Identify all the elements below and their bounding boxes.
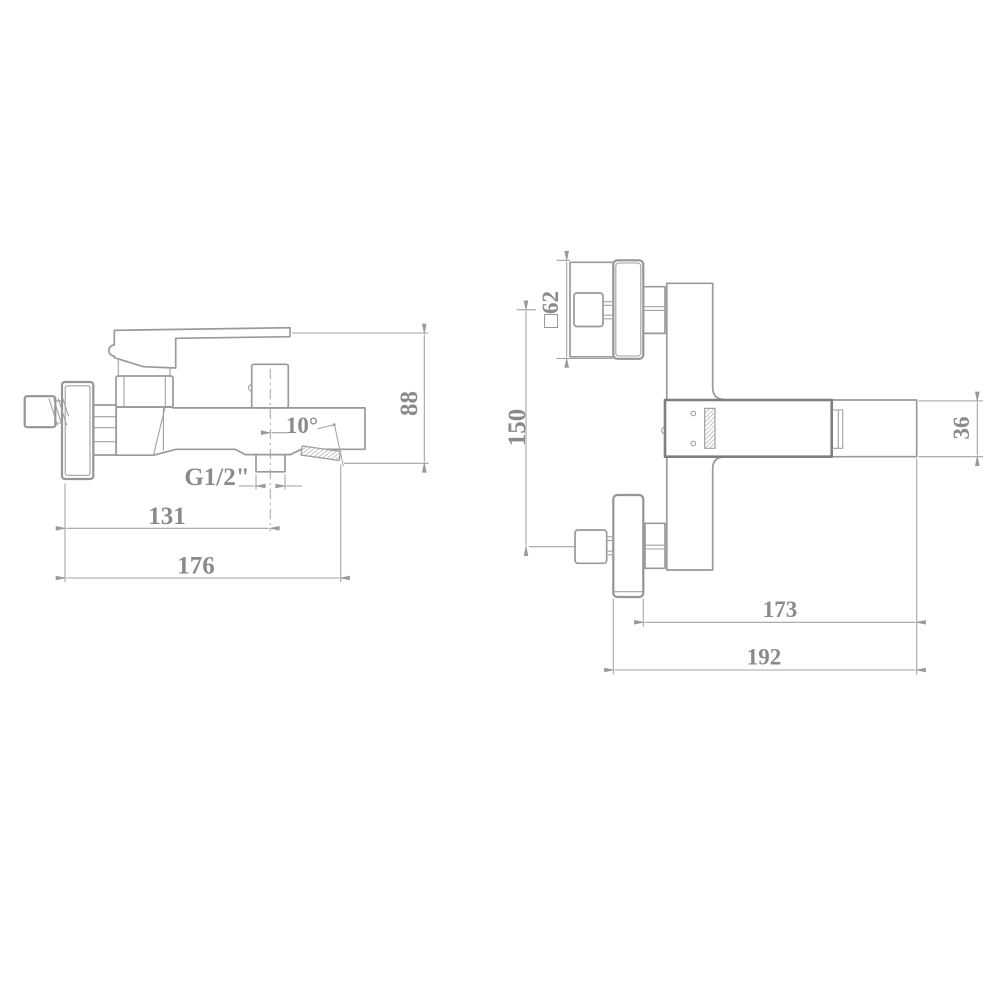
- top-flange: [613, 260, 643, 359]
- dim-150: 150: [504, 310, 575, 547]
- dim-g12-label: G1/2": [184, 464, 249, 491]
- spout-top-view: [832, 400, 917, 457]
- dim-131: 131: [65, 484, 269, 583]
- supply-fitting: [25, 396, 56, 427]
- mixer-body-top-view: [665, 400, 832, 457]
- dim-176-label: 176: [177, 553, 215, 580]
- technical-drawing: 88 131 176 G1/2" 10°: [0, 0, 1000, 1000]
- top-column: [667, 283, 725, 399]
- bottom-column: [667, 457, 725, 570]
- spout-bracket: [832, 410, 843, 448]
- top-port-tab1: [603, 302, 613, 306]
- side-view: 88 131 176 G1/2" 10°: [25, 328, 429, 582]
- wall-nut-flats: [94, 417, 117, 442]
- dim-192-label: 192: [747, 645, 782, 670]
- top-flange-inner: [616, 263, 641, 356]
- bottom-port-square: [575, 530, 607, 563]
- bottom-flange: [613, 495, 643, 597]
- dim-62-label: □62: [538, 291, 563, 328]
- dim-36-label: 36: [949, 417, 974, 440]
- dim-173-label: 173: [763, 597, 798, 622]
- dim-88: 88: [292, 333, 429, 463]
- body-inner-detail: [154, 408, 166, 456]
- spout-aerator: [301, 446, 341, 460]
- lever-grip-strip: [705, 408, 715, 448]
- drawing-canvas: 88 131 176 G1/2" 10°: [0, 0, 1000, 1000]
- top-escutcheon-plate: [570, 262, 613, 357]
- bottom-nut: [645, 523, 665, 568]
- wall-nut: [94, 405, 117, 455]
- dim-62: □62: [538, 260, 614, 358]
- bottom-nut-flats: [645, 545, 665, 549]
- front-view: □62 150 36 173 192: [504, 260, 983, 674]
- cartridge-inner-lines: [124, 377, 165, 407]
- dim-150-label: 150: [504, 409, 531, 447]
- top-nut-flats: [643, 307, 665, 311]
- wall-flange: [62, 382, 93, 479]
- dim-173: 173: [643, 459, 916, 675]
- dim-10deg-label: 10°: [286, 413, 318, 438]
- dim-36: 36: [919, 401, 984, 457]
- wall-flange-inner: [65, 386, 90, 476]
- lever-handle: [109, 328, 290, 368]
- faucet-body-outline: [116, 407, 365, 455]
- top-port-tab2: [603, 315, 613, 319]
- dim-88-label: 88: [396, 391, 423, 416]
- top-port-square: [574, 293, 603, 327]
- dim-131-label: 131: [148, 503, 186, 530]
